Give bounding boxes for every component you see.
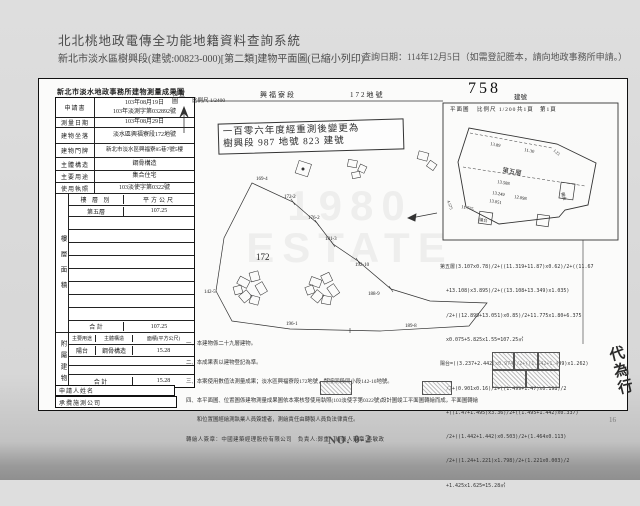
balcony-label: 陽台 xyxy=(479,216,488,224)
seal-pattern xyxy=(493,371,525,387)
square-seal xyxy=(538,352,560,370)
note-line: 一、本建物係二十九層建物。 xyxy=(186,341,486,347)
screenshot-stage: 北北桃地政電傳全功能地籍資料查詢系統 新北市淡水區樹興段(建號:00823-00… xyxy=(0,0,640,480)
plan-floor-label: 第五層 xyxy=(502,165,523,177)
boundary-ticks xyxy=(291,199,393,333)
pointer-arrow-head xyxy=(408,214,416,221)
floorplan-outline xyxy=(458,128,596,224)
bottom-scan-mark: NO. 0-2 xyxy=(328,433,372,447)
parcel-label: 176-2 xyxy=(308,216,320,221)
formula-line: /2+((1.24+1.221)x1.798)/2+(1.221x0.003)/… xyxy=(440,457,628,465)
seal-pattern xyxy=(515,353,537,369)
note-line: 和位置圖經繪測執業人員簽證者，測繪責任由轉製人員負法律責任。 xyxy=(186,417,486,423)
seal-pattern xyxy=(423,382,451,394)
square-seal xyxy=(492,352,514,370)
plan-dim: 11.775 xyxy=(461,204,475,212)
plan-dim: 13.89 xyxy=(490,141,502,148)
neighbour-parcels xyxy=(295,151,437,179)
square-seal xyxy=(492,370,526,388)
balcony-label: 陽台 xyxy=(559,191,568,201)
parcel-label: 142-5 xyxy=(204,290,216,295)
plan-dim: 13.051 xyxy=(489,198,503,205)
parcel-label: 196-1 xyxy=(286,322,298,327)
plan-dim: 4.575 xyxy=(446,200,454,211)
seal-pattern xyxy=(321,382,351,394)
plan-dim: 1.23 xyxy=(552,148,561,157)
formula-line: /2+((12.899+13.051)x0.85)/2+11.775x1.80+… xyxy=(440,312,628,320)
name-seal xyxy=(422,381,452,395)
formula-line: +13.108)x3.895)/2+((13.108+13.349)x1.035… xyxy=(440,287,628,295)
balcony-outlines xyxy=(478,182,575,227)
plan-dim: 12.098 xyxy=(514,194,528,201)
formula-line: 第五層(3.107x0.78)/2+((11.319+11.87)x0.62)/… xyxy=(440,263,628,271)
square-seal xyxy=(526,370,560,388)
plan-box xyxy=(443,103,618,240)
seal-pattern xyxy=(539,353,559,369)
plan-dim: 11.30 xyxy=(524,147,536,154)
parcel-label: 192-10 xyxy=(355,263,370,268)
name-seal xyxy=(320,381,352,395)
formula-line: +1.425x1.625=15.28㎡ xyxy=(440,482,628,490)
parcel-label: 169-4 xyxy=(256,177,268,182)
building-footprint-cluster xyxy=(233,271,267,305)
plan-dim: 13.249 xyxy=(492,190,506,197)
parcel-label: 181-3 xyxy=(325,237,337,242)
seal-pattern xyxy=(493,353,513,369)
floorplan-inner-lines xyxy=(463,133,585,186)
parcel-label: 172-2 xyxy=(284,195,296,200)
plan-dim: 13.588 xyxy=(497,179,511,186)
note-line: 二、本成果表以建物登記為準。 xyxy=(186,360,486,366)
note-line: 四、本平面圖、位置圖係建物測量成果圖依本案核發使用執照(103淡使字第0322號… xyxy=(186,398,486,404)
seal-pattern xyxy=(527,371,559,387)
main-parcel-label: 172 xyxy=(256,252,270,262)
square-seal xyxy=(514,352,538,370)
building-footprint-cluster xyxy=(305,272,340,305)
bottom-page-mark: 16 xyxy=(609,416,616,424)
parcel-label: 188-9 xyxy=(368,292,380,297)
